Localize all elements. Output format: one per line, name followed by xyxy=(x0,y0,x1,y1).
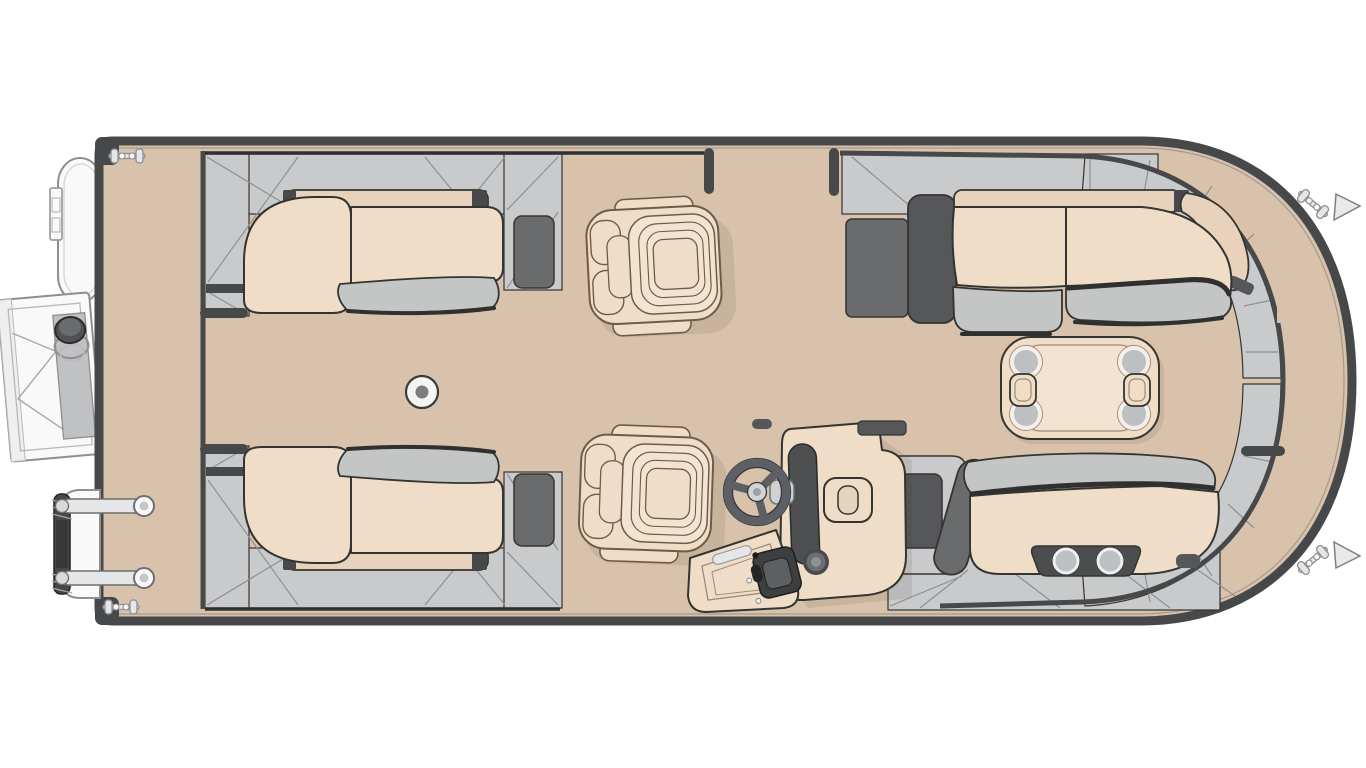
bow-tab-top xyxy=(1334,194,1360,220)
ladder-rail xyxy=(62,571,144,585)
floorplan-stage xyxy=(0,0,1366,768)
corner-cushion xyxy=(244,197,351,313)
boarding-gate-ladder-icon xyxy=(0,292,103,461)
dash-pad xyxy=(788,444,820,565)
fence-stub xyxy=(1241,446,1285,456)
bow-gate-gap xyxy=(1277,308,1290,323)
pontoon-floorplan xyxy=(0,0,1366,768)
lounge-bottom-right xyxy=(884,453,1219,578)
bolster-left xyxy=(953,287,1062,332)
captain-chair-helm xyxy=(578,424,729,567)
side-gate-post-left xyxy=(704,148,714,194)
main-cushion xyxy=(351,476,503,553)
cupholder-panel xyxy=(1032,546,1141,576)
armrest-block xyxy=(846,219,908,317)
bow-tab-bottom xyxy=(1334,542,1360,568)
table-base-mount xyxy=(406,376,438,408)
lounge-top-right xyxy=(846,190,1255,334)
panel-storage-box xyxy=(514,216,554,288)
bolster xyxy=(338,277,499,312)
bolster xyxy=(338,448,499,483)
outboard-motor-icon xyxy=(50,158,102,302)
bow-table xyxy=(1001,337,1164,444)
console-top-pad xyxy=(858,421,906,435)
armrest xyxy=(908,195,956,323)
ladder-rail xyxy=(62,499,144,513)
panel-storage-box xyxy=(514,474,554,546)
main-cushion xyxy=(351,207,503,284)
cushion-left xyxy=(953,207,1066,288)
fence-stub xyxy=(200,308,248,318)
fence-stub xyxy=(200,444,248,454)
corner-cushion xyxy=(244,447,351,563)
side-gate-post-right xyxy=(829,148,839,196)
